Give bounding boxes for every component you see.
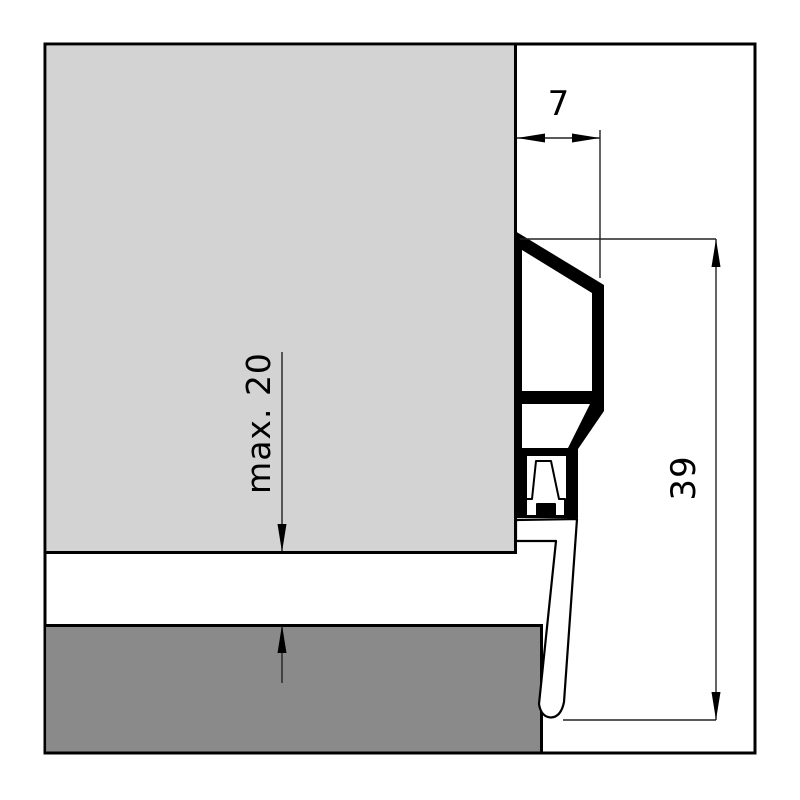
arrow-down-icon xyxy=(712,692,721,720)
door-panel xyxy=(47,46,514,551)
arrow-up-icon xyxy=(712,239,721,267)
arrow-left-icon xyxy=(517,134,545,143)
profile-body xyxy=(515,231,604,518)
profile-cross-section-drawing xyxy=(0,0,800,800)
floor-slab xyxy=(47,627,540,753)
dim-label-width-7: 7 xyxy=(517,84,601,124)
dim-label-gap-max-20: max. 20 xyxy=(239,343,279,503)
technical-drawing-page: 7 39 max. 20 xyxy=(0,0,800,800)
dim-label-height-39: 39 xyxy=(664,418,704,538)
arrow-right-icon xyxy=(572,134,600,143)
